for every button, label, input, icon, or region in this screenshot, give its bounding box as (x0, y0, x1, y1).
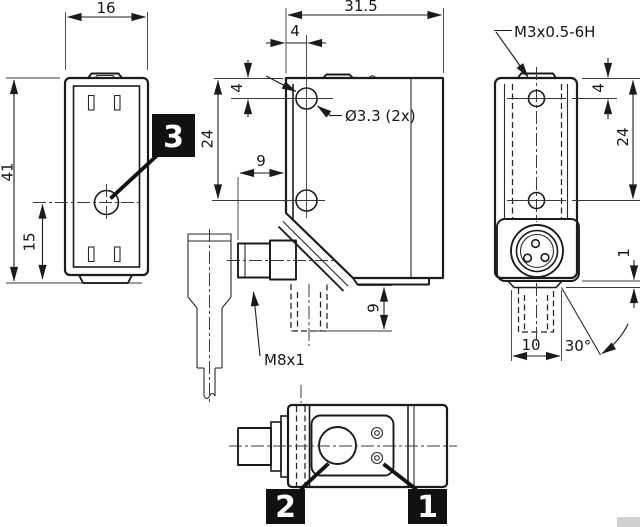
label-mounting-thread: M3x0.5-6H (494, 23, 595, 77)
side-view: 31.5 4 4 24 9 9 Ø3.3 (2x) (188, 0, 444, 403)
m8-pin (524, 254, 532, 262)
dim-side-connector-down-text: 9 (364, 303, 382, 313)
dim-rear-step-text: 1 (615, 248, 633, 258)
dim-front-height-text: 41 (0, 162, 16, 181)
m8-pin (541, 254, 549, 262)
dim-rear-connector-width: 10 (513, 336, 560, 356)
dim-side-width: 31.5 (288, 0, 442, 15)
dim-rear-hole-spacing-text: 24 (614, 127, 632, 146)
dim-rear-swivel-angle: 30° (565, 324, 628, 355)
dim-front-optical-axis-text: 15 (20, 232, 38, 251)
m8-connector-face (511, 225, 563, 277)
label-mounting-thread-text: M3x0.5-6H (514, 23, 595, 41)
drawing-canvas: 16 41 15 3 (0, 0, 640, 527)
callout-1-number: 1 (417, 490, 438, 525)
dim-rear-hole-y-text: 4 (589, 83, 607, 93)
side-hidden-connector-down (291, 284, 327, 346)
callout-2: 2 (266, 464, 329, 526)
dim-side-width-text: 31.5 (344, 0, 377, 15)
indicator-led (372, 428, 383, 439)
dim-side-hole-x-text: 4 (290, 22, 300, 40)
dim-side-connector-down: 9 (364, 288, 384, 330)
callout-2-number: 2 (275, 490, 296, 525)
callout-1-leader (384, 464, 417, 490)
dimensional-drawing: 16 41 15 3 (0, 0, 640, 527)
dim-side-hole-spacing: 24 (198, 81, 218, 199)
label-mounting-holes-text: Ø3.3 (2x) (345, 107, 416, 125)
watermark-fragment (617, 517, 640, 527)
bottom-m8-connector (229, 416, 457, 477)
label-mounting-holes: Ø3.3 (2x) (266, 76, 416, 125)
dim-side-hole-y-text: 4 (228, 83, 246, 93)
dim-side-hole-x: 4 (266, 22, 326, 43)
dim-side-connector-protrusion: 9 (240, 152, 284, 173)
front-mounting-hole (33, 184, 142, 221)
dim-side-connector-protrusion-text: 9 (256, 152, 266, 170)
bottom-view: 2 1 (229, 385, 457, 525)
dim-side-hole-spacing-text: 24 (198, 129, 216, 148)
dim-front-optical-axis: 15 (20, 205, 42, 280)
indicator-led (372, 453, 383, 464)
dim-rear-step: 1 (615, 248, 634, 308)
dim-front-height: 41 (0, 80, 16, 281)
dim-rear-hole-y: 4 (589, 58, 608, 119)
side-extension-lines (214, 8, 444, 331)
callout-1: 1 (384, 464, 448, 525)
callout-3: 3 (111, 114, 196, 199)
side-mounting-holes (212, 35, 333, 218)
callout-3-number: 3 (163, 120, 184, 155)
bottom-view-outline (288, 385, 447, 487)
front-view: 16 41 15 3 (0, 0, 195, 283)
rear-view: M3x0.5-6H 4 24 1 10 30° (494, 23, 640, 361)
front-view-outline (65, 74, 148, 284)
dim-front-width: 16 (68, 0, 146, 17)
callout-3-leader (111, 156, 158, 199)
m8-pin (532, 240, 540, 248)
dim-front-width-text: 16 (96, 0, 115, 17)
dim-rear-swivel-angle-text: 30° (565, 337, 592, 355)
phantom-cable-plug (188, 229, 231, 403)
dim-rear-connector-width-text: 10 (521, 336, 540, 354)
label-connector-thread-text: M8x1 (264, 351, 305, 369)
front-view-slots (89, 96, 121, 262)
dim-side-hole-y: 4 (228, 60, 248, 117)
